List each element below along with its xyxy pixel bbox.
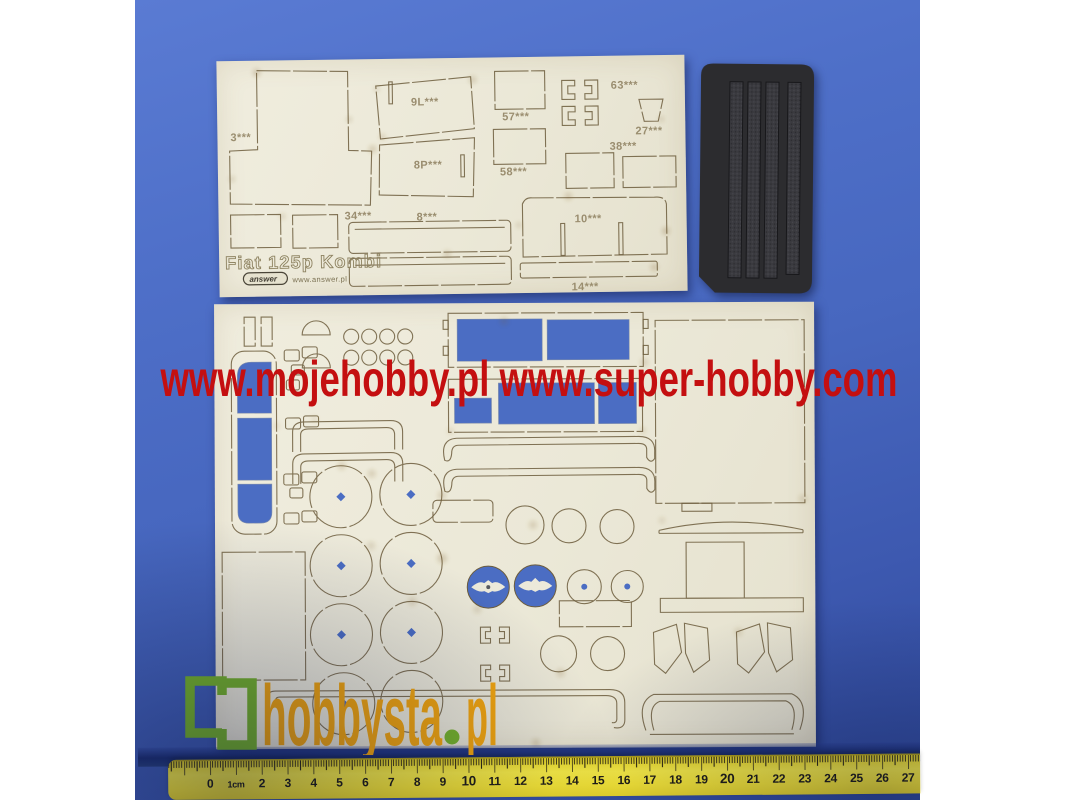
shop-logo-dot	[445, 730, 460, 745]
ruler-number: 7	[378, 775, 404, 789]
ruler-number: 12	[507, 774, 533, 788]
part-label-14: 14***	[571, 281, 599, 293]
part-label-8p: 8P***	[414, 159, 443, 171]
part-rect-b	[293, 215, 338, 249]
short-rails	[293, 420, 403, 483]
ruler-number: 26	[869, 771, 895, 785]
bench-strip-1	[349, 220, 511, 253]
part-label-8: 8***	[416, 211, 437, 223]
part-10-outline	[522, 196, 667, 257]
part-58-outline	[493, 129, 545, 165]
crop-mark-icon	[190, 681, 252, 745]
shop-logo-main: hobbysta	[262, 668, 443, 755]
plate-part	[433, 500, 493, 522]
part-rect-a	[231, 214, 281, 248]
ruler-number: 5	[326, 775, 352, 789]
bumper-rails	[443, 436, 654, 493]
part-label-57: 57***	[502, 111, 530, 123]
ruler-number: 6	[352, 775, 378, 789]
ruler-number: 0	[197, 777, 223, 791]
part-label-34: 34***	[344, 210, 372, 222]
ruler-number: 4	[301, 776, 327, 790]
ruler-number: 3	[275, 776, 301, 790]
ruler-number: 27	[895, 770, 920, 784]
ruler-number: 20	[714, 771, 740, 786]
roof-panel	[655, 320, 805, 504]
rubber-mat-part	[695, 60, 819, 297]
part-label-58: 58***	[500, 166, 528, 178]
part-label-9l: 9L***	[411, 96, 439, 108]
brand-name: answer	[249, 274, 278, 283]
lasercut-sheet-top: 3*** 9L*** 8P*** 57*** 58*** 63*** 27***…	[216, 55, 687, 298]
shop-logo: hobbysta pl	[178, 667, 500, 755]
brand-url: www.answer.pl	[291, 274, 347, 284]
ruler-number: 22	[766, 772, 792, 786]
floor-panel	[222, 552, 306, 680]
part-38b-outline	[623, 156, 676, 188]
slot-a	[244, 317, 255, 346]
product-photo: 3*** 9L*** 8P*** 57*** 58*** 63*** 27***…	[0, 0, 1067, 800]
part-57-outline	[495, 71, 546, 110]
ruler-number: 19	[688, 772, 714, 786]
window-cutouts	[237, 318, 637, 523]
part-14-outline	[520, 261, 657, 278]
ruler-number: 21	[740, 772, 766, 786]
ruler-number: 18	[662, 772, 688, 786]
part-label-63: 63***	[611, 79, 639, 91]
ruler: 0 1cm 2 3 4 5 6 7 8 9 10 11 12 13 14 15 …	[168, 753, 920, 800]
ruler-number: 25	[843, 771, 869, 785]
shop-logo-tld: pl	[466, 668, 498, 755]
ruler-number: 13	[533, 774, 559, 788]
ruler-number: 8	[404, 775, 430, 789]
ruler-number: 16	[611, 773, 637, 787]
sheet-title-engraving: Fiat 125p Kombi	[225, 251, 382, 273]
part-label-3: 3***	[230, 132, 251, 144]
ruler-number: 1cm	[223, 779, 249, 789]
burn-marks	[227, 63, 670, 277]
ruler-number: 24	[818, 771, 844, 785]
deflector-parts	[653, 623, 792, 674]
slot-b	[261, 317, 272, 346]
ruler-number: 14	[559, 773, 585, 787]
small-plate	[559, 600, 631, 626]
ruler-number: 15	[585, 773, 611, 787]
part-38a-outline	[566, 153, 614, 189]
steering-wheel-discs	[467, 565, 556, 608]
part-label-38: 38***	[610, 140, 638, 152]
brand-logo-answer: answer www.answer.pl	[243, 271, 347, 284]
ruler-number: 23	[792, 771, 818, 785]
part-label-10: 10***	[575, 213, 603, 225]
ruler-number: 2	[249, 776, 275, 790]
part-label-27: 27***	[635, 125, 663, 137]
ruler-number: 11	[481, 774, 507, 788]
ruler-number: 17	[637, 773, 663, 787]
ruler-number: 9	[430, 774, 456, 788]
part-63-brackets	[562, 80, 599, 125]
ruler-number: 10	[456, 773, 482, 788]
sheet-top-cuts: 3*** 9L*** 8P*** 57*** 58*** 63*** 27***…	[216, 55, 687, 298]
